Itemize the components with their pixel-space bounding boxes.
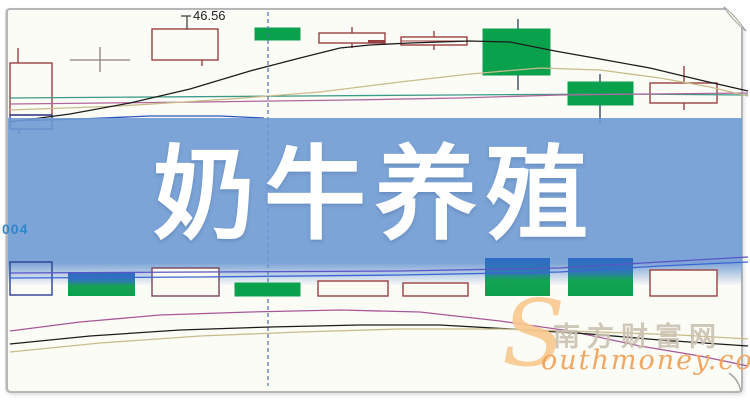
page-fold-corner-icon [718,4,748,34]
watermark-domain-text: outhmoney.com [541,345,750,376]
watermark: S 南方财富网 outhmoney.com [500,298,748,394]
banner-title: 奶牛养殖 [0,142,750,249]
page-curl-corner-icon [727,371,749,395]
price-annotation: 46.56 [193,8,226,23]
promo-image: 004 46.56 奶牛养殖 S 南方财富网 outhmoney.com [0,0,750,400]
